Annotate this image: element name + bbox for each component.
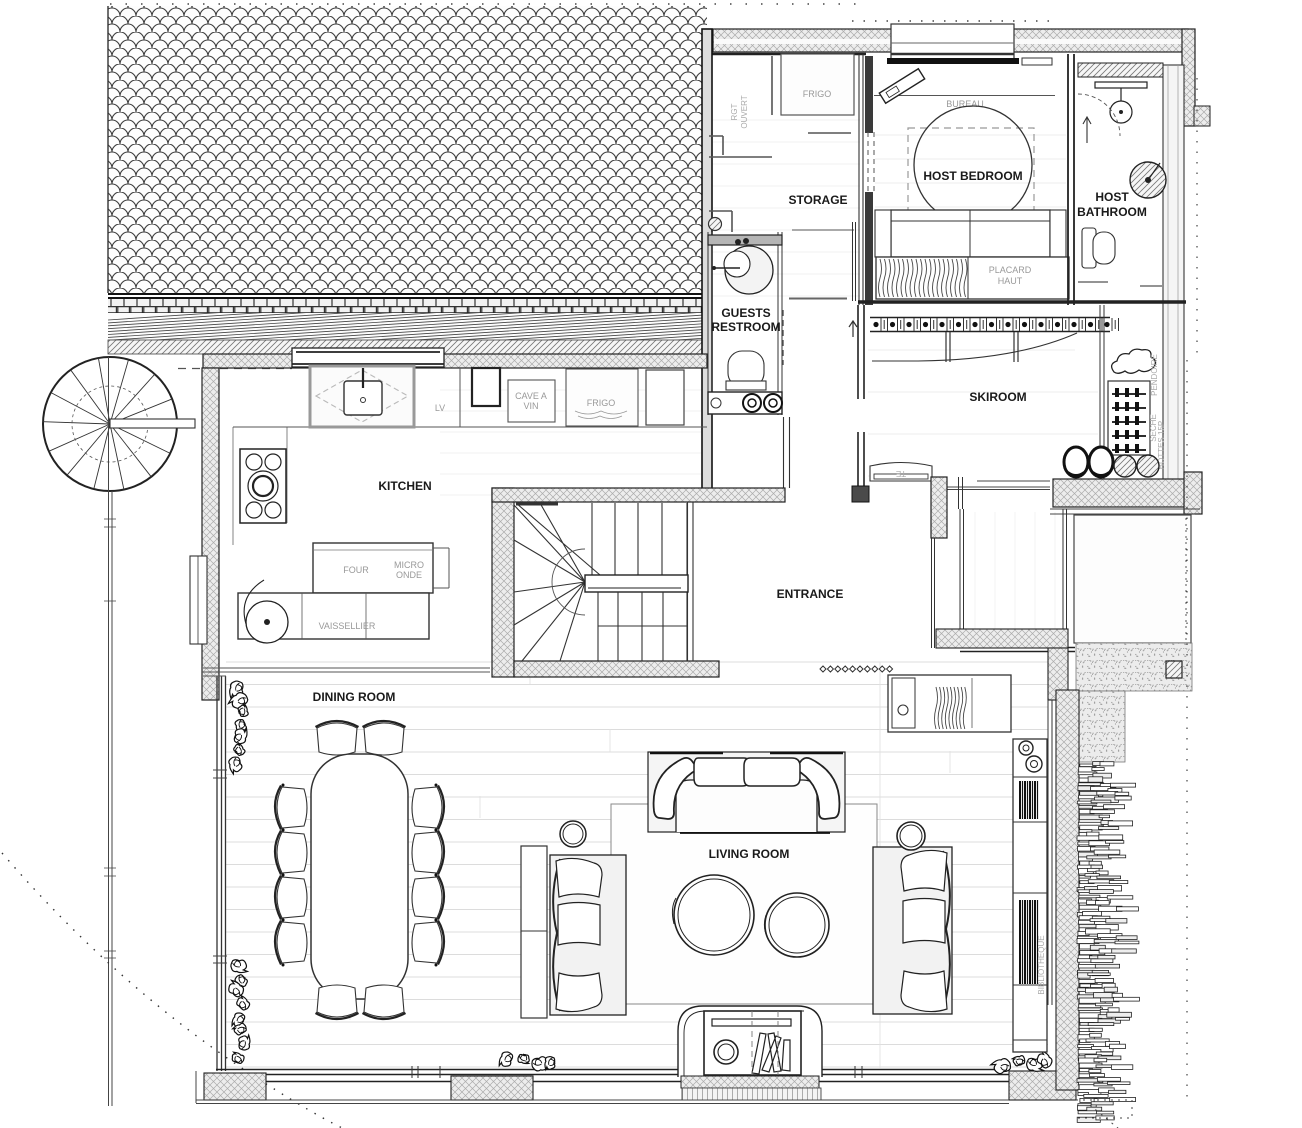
svg-text:LIVING ROOM: LIVING ROOM bbox=[709, 847, 790, 861]
svg-text:TE: TE bbox=[896, 469, 906, 478]
svg-text:HOST BEDROOM: HOST BEDROOM bbox=[923, 169, 1022, 183]
svg-text:LV: LV bbox=[435, 403, 445, 413]
svg-text:SKIROOM: SKIROOM bbox=[969, 390, 1026, 404]
svg-text:FRIGO: FRIGO bbox=[803, 89, 832, 99]
svg-text:BATHROOM: BATHROOM bbox=[1077, 205, 1147, 219]
svg-text:ENTRANCE: ENTRANCE bbox=[777, 587, 844, 601]
svg-text:OUVERT: OUVERT bbox=[740, 95, 749, 128]
svg-text:GUESTS: GUESTS bbox=[721, 306, 770, 320]
svg-text:FOUR: FOUR bbox=[343, 565, 369, 575]
svg-text:CAVE A: CAVE A bbox=[515, 391, 547, 401]
svg-text:BIBLIOTHEQUE: BIBLIOTHEQUE bbox=[1037, 935, 1046, 994]
svg-text:KITCHEN: KITCHEN bbox=[378, 479, 431, 493]
svg-text:FRIGO: FRIGO bbox=[587, 398, 616, 408]
svg-text:STORAGE: STORAGE bbox=[788, 193, 847, 207]
svg-text:HOST: HOST bbox=[1095, 190, 1129, 204]
svg-text:DINING ROOM: DINING ROOM bbox=[313, 690, 396, 704]
svg-text:PLACARD: PLACARD bbox=[989, 265, 1032, 275]
svg-text:RESTROOM: RESTROOM bbox=[711, 320, 780, 334]
svg-text:VIN: VIN bbox=[523, 401, 538, 411]
svg-text:VAISSELLIER: VAISSELLIER bbox=[319, 621, 376, 631]
svg-text:RGT: RGT bbox=[730, 103, 739, 120]
svg-text:PENDOIRE: PENDOIRE bbox=[1150, 354, 1159, 396]
svg-text:HAUT: HAUT bbox=[998, 276, 1023, 286]
svg-text:MICRO: MICRO bbox=[394, 560, 424, 570]
svg-text:ONDE: ONDE bbox=[396, 570, 422, 580]
svg-text:BUREAU: BUREAU bbox=[946, 99, 984, 109]
